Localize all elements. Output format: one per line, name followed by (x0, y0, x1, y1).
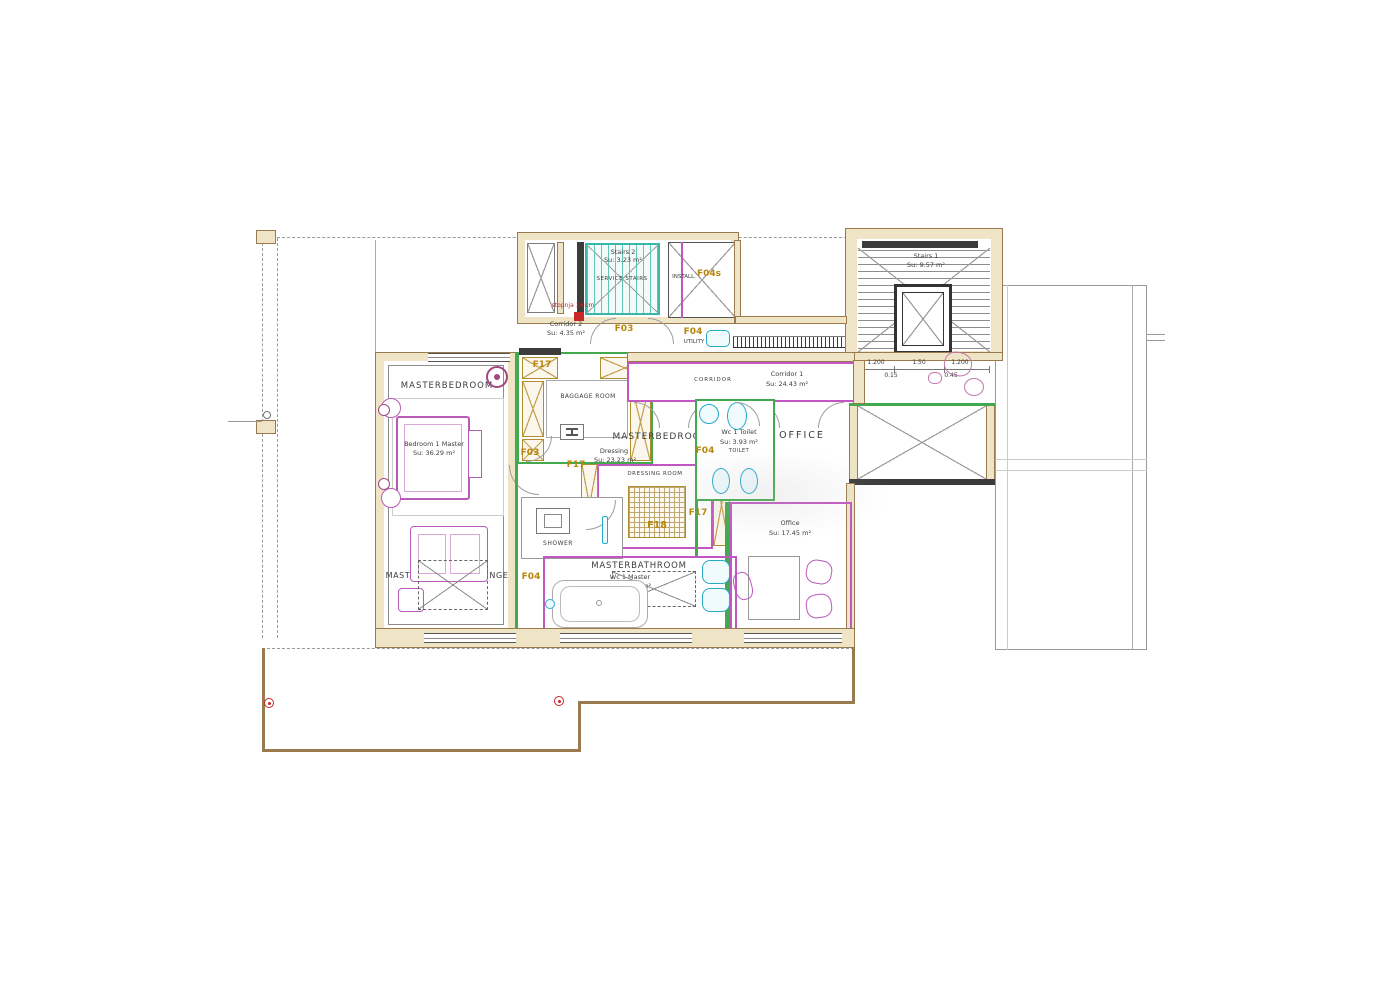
roof-stub-line (1147, 340, 1165, 341)
baggage-room-label: BAGGAGE ROOM (550, 393, 626, 400)
skylight-void-cross (418, 560, 488, 610)
terrace-dashed-left-outer (262, 238, 264, 638)
window (560, 633, 692, 643)
door-label-f04s: F04s (694, 269, 724, 279)
corridor1-sub-label: CORRIDOR (690, 377, 736, 383)
drain-marker-icon (554, 696, 564, 706)
roof-inner-line-h2 (995, 470, 1147, 471)
toilet-name: Wc 1 Toilet (710, 428, 768, 436)
stairs2-area: Su: 3.23 m² (592, 256, 654, 264)
lower-terrace-right-edge (852, 648, 855, 704)
dimension-label: 0.15 (878, 372, 904, 379)
bathroom-title: MASTERBATHROOM (574, 561, 704, 571)
corridor1-room (627, 362, 865, 402)
window (428, 353, 510, 362)
floor-plan-canvas: Stairs 1 Su: 9.57 m² 1.200 1.50 1.200 0.… (0, 0, 1400, 989)
stairs1-name: Stairs 1 (898, 252, 954, 260)
lower-terrace-bottom-edge (262, 749, 581, 752)
corridor1-end-wall (853, 360, 865, 404)
suite-detail: Dressing (590, 447, 638, 455)
washbasin-icon (699, 404, 719, 424)
floor-grille-icon (733, 336, 845, 348)
corridor1-north-wall (627, 352, 855, 362)
lower-terrace-bottom-edge-right (578, 701, 855, 704)
sink-icon (702, 588, 730, 612)
install-shaft-liner (681, 242, 683, 318)
shaft-right-wall (986, 403, 995, 483)
window (424, 633, 516, 643)
stairs1-shaft-cross (902, 292, 944, 346)
install-shaft (668, 242, 736, 318)
wardrobe-unit (522, 381, 544, 437)
revision-cloud-sketch (964, 378, 984, 396)
nightstand-icon (381, 488, 401, 508)
terrace-tie-line (228, 421, 262, 422)
service-block-right-wall (734, 240, 741, 324)
terrace-post-mid (256, 420, 276, 434)
dimension-label: 1.50 (902, 359, 936, 366)
shower-valve-icon (602, 516, 608, 544)
utility-fixture-icon (706, 330, 730, 347)
desk (748, 556, 800, 620)
lamp-icon (378, 404, 390, 416)
terrace-post-top (256, 230, 276, 244)
corridor2-area: Su: 4.35 m² (536, 329, 596, 337)
bed-headboard (468, 430, 482, 478)
door-label-f04: F04 (680, 327, 706, 337)
drain-marker-icon (264, 698, 274, 708)
stairs1-area: Su: 9.57 m² (898, 261, 954, 269)
door-label-f04: F04 (517, 572, 545, 582)
stairs1-top-beam (862, 241, 978, 248)
step-height-note: stopnja 16 cm (536, 302, 610, 309)
green-wall-left (515, 352, 518, 638)
roof-outline (995, 285, 1147, 650)
door-label-f17: F17 (528, 360, 556, 370)
master-bedroom-title: MASTERBEDROOM (392, 381, 502, 391)
corridor1-area: Su: 24.43 m² (754, 380, 820, 388)
corridor2-name: Corridor 2 (536, 320, 596, 328)
roof-inner-line-h1 (995, 459, 1147, 460)
corridor1-name: Corridor 1 (754, 370, 820, 378)
stairs2-name: Stairs 2 (592, 248, 654, 256)
roof-inner-line-right (1132, 285, 1133, 650)
corridor-north-wall (735, 316, 847, 324)
terrace-dashed-left-inner (277, 238, 279, 638)
toilet-area: Su: 3.93 m² (712, 438, 766, 446)
door-swing-arc (818, 402, 844, 428)
lamp-icon (378, 478, 390, 490)
service-stairs-label: SERVICE STAIRS (586, 276, 658, 282)
bathtub-drain-icon (596, 600, 602, 606)
roof-inner-line-left (1007, 285, 1008, 650)
shower-tray-inner (544, 514, 562, 528)
i-beam-symbol-icon (566, 428, 578, 436)
tub-tap-icon (545, 599, 555, 609)
bedroom-detail: Bedroom 1 Master (398, 440, 470, 448)
window (744, 633, 842, 643)
sink-icon (702, 560, 730, 584)
ceiling-fixture-dot-icon (494, 374, 500, 380)
baggage-floor (546, 380, 628, 438)
watermark (645, 448, 890, 540)
lower-terrace-step-edge (578, 701, 581, 752)
suite-area: Su: 23.23 m² (586, 456, 644, 464)
roof-stub-line (1147, 334, 1165, 335)
door-label-f17: F17 (562, 460, 590, 470)
revision-cloud-sketch (928, 372, 942, 384)
baggage-top-beam (519, 348, 561, 355)
bedroom-area: Su: 36.29 m² (398, 449, 470, 457)
bed-cover-line (404, 424, 462, 492)
terrace-circle-marker (263, 411, 271, 419)
lower-terrace-dashed-edge (262, 648, 854, 650)
dimension-tick (989, 366, 990, 373)
door-label-f03: F03 (516, 448, 544, 458)
door-swing-arc (634, 402, 660, 428)
office-hall-title: OFFICE (774, 430, 830, 441)
shower-label: SHOWER (536, 540, 580, 547)
terrace-division-line (375, 240, 376, 354)
